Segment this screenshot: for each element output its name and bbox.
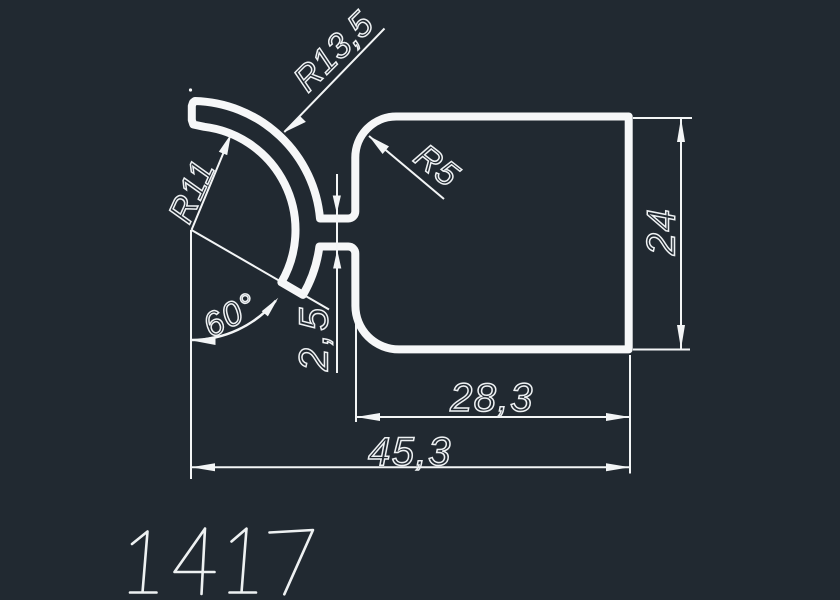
svg-text:2,5: 2,5 bbox=[291, 305, 337, 372]
svg-text:24: 24 bbox=[640, 208, 684, 257]
svg-text:28,3: 28,3 bbox=[449, 376, 534, 420]
svg-text:45,3: 45,3 bbox=[368, 430, 452, 474]
